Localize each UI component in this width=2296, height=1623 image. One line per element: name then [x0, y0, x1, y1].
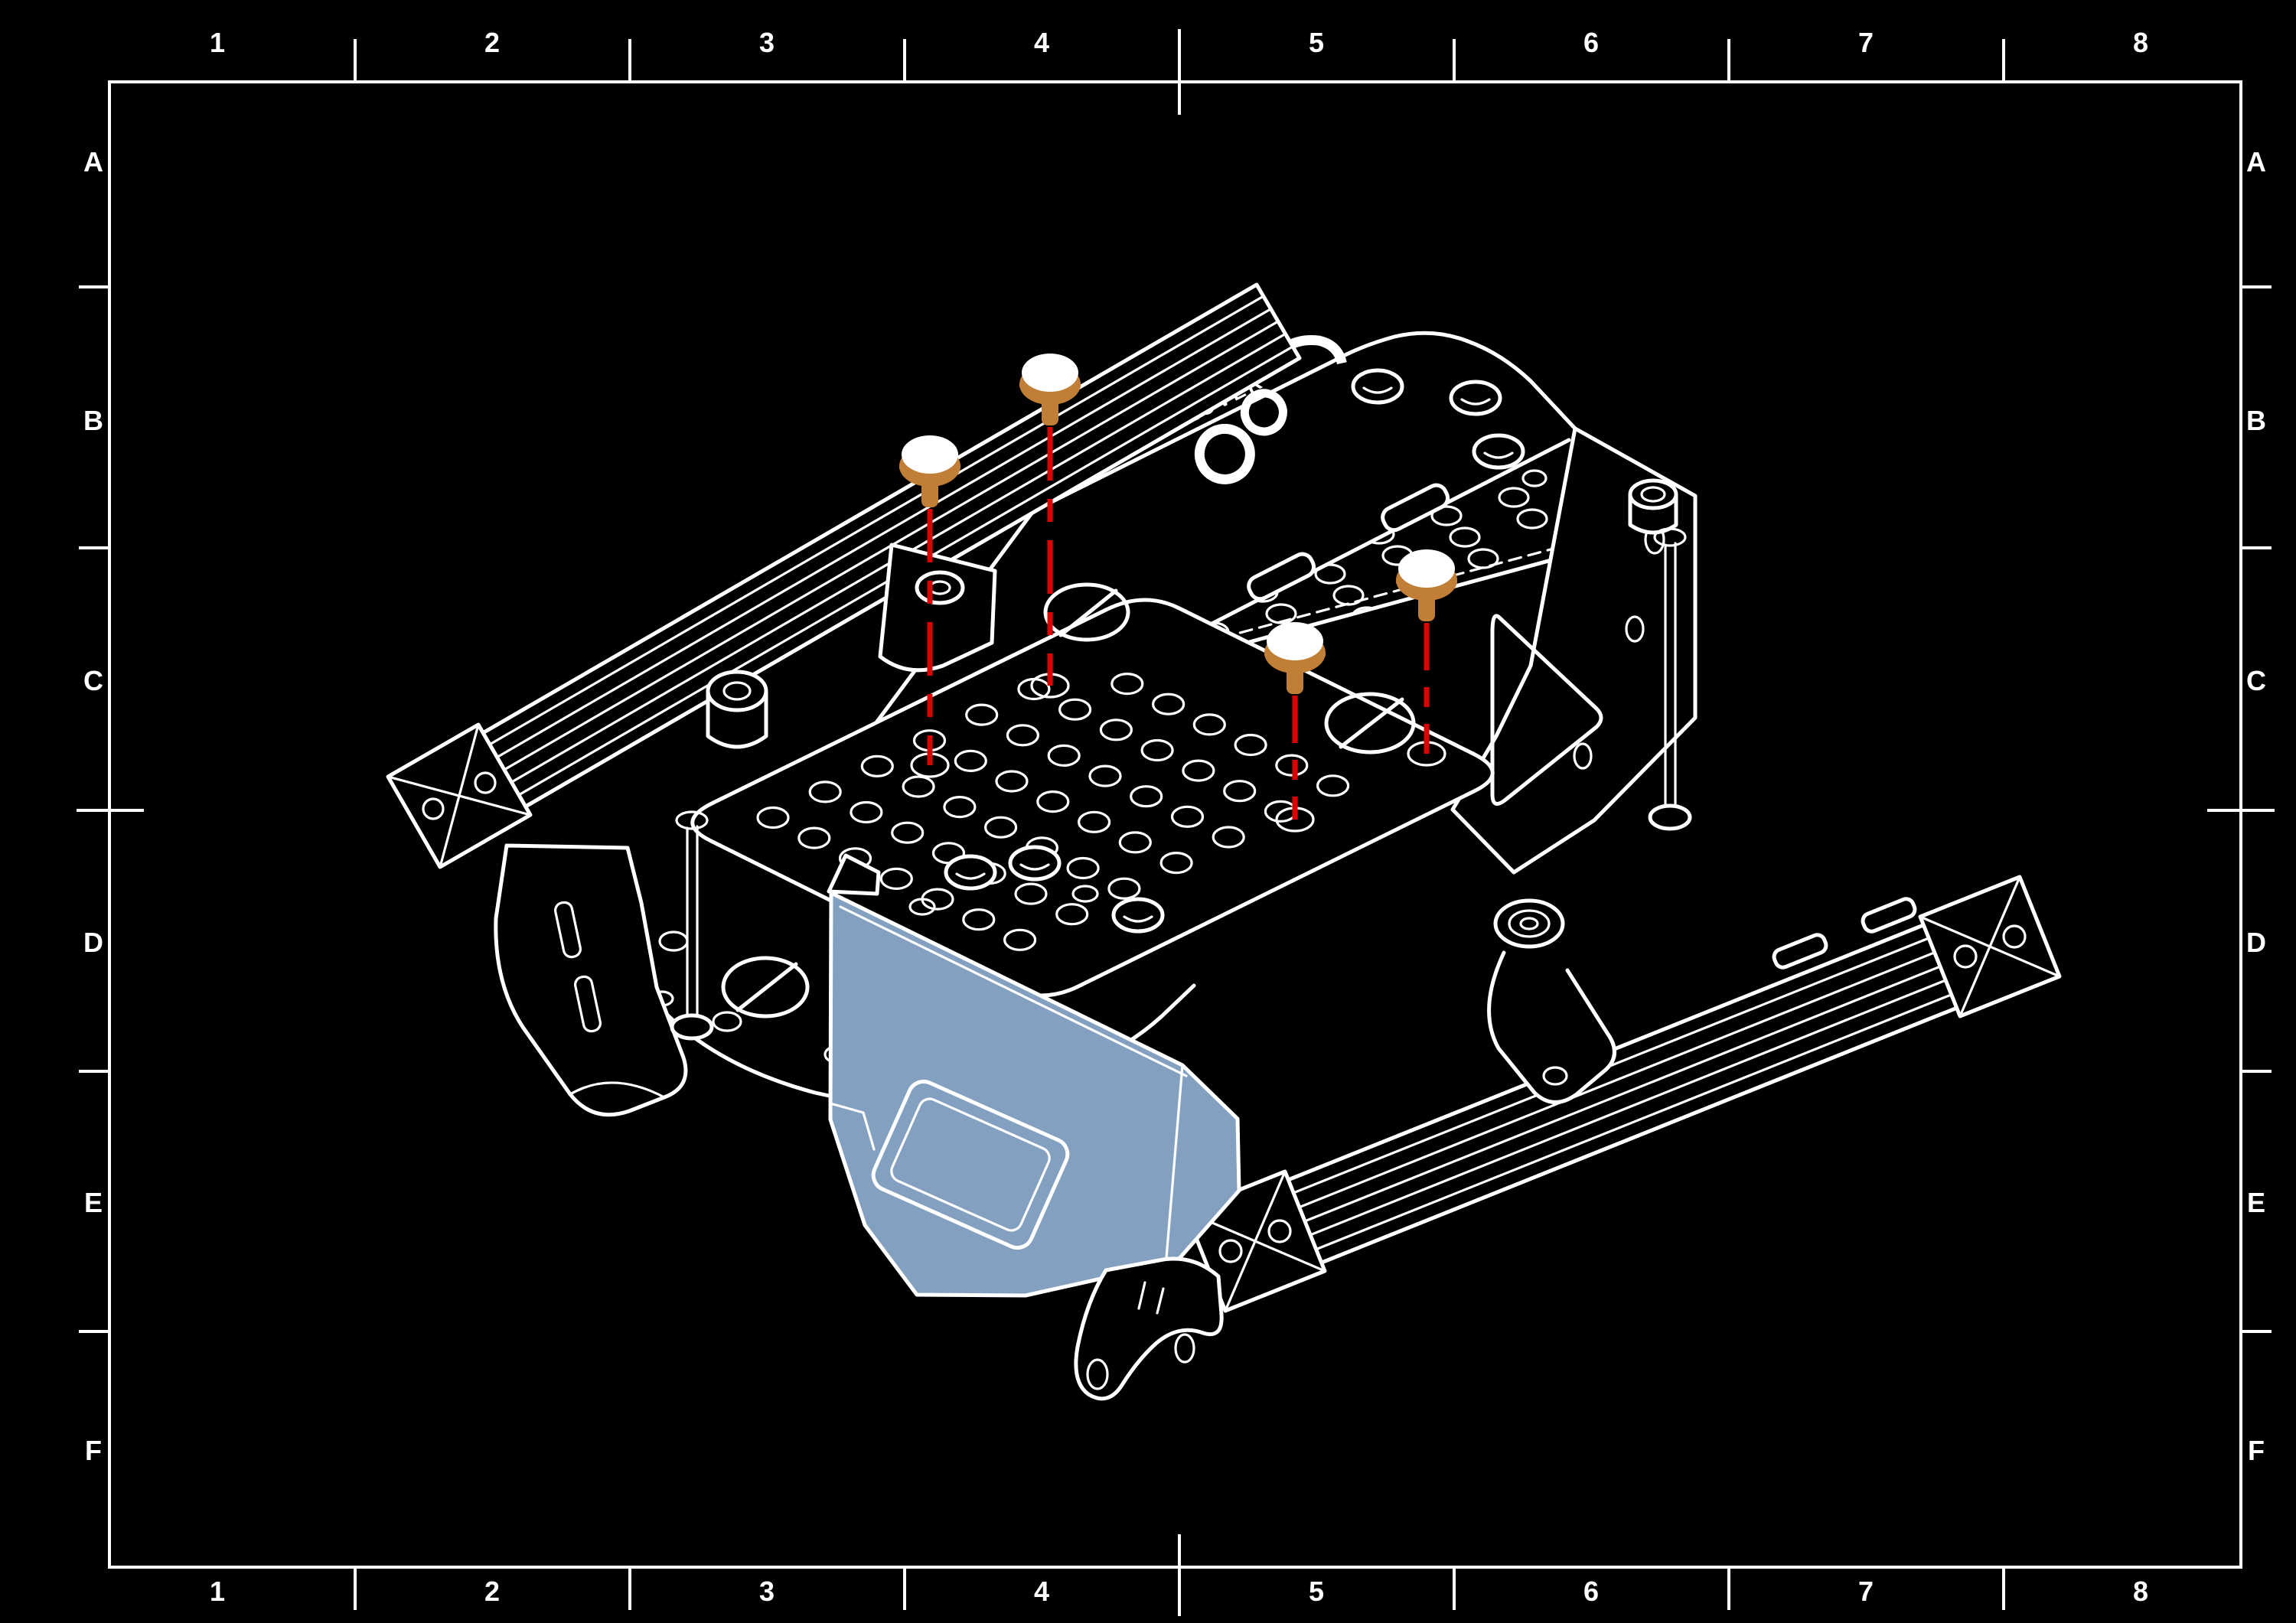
rail-hinge-bracket — [880, 545, 995, 670]
slotted-cutout — [723, 958, 807, 1016]
zone-label: E — [2247, 1187, 2265, 1218]
zone-label: F — [85, 1435, 102, 1466]
zone-label: D — [2246, 927, 2266, 958]
zone-label: 5 — [1309, 27, 1324, 58]
hole — [713, 1012, 741, 1031]
zone-label: 2 — [484, 1576, 500, 1607]
standoff-cylinder — [1630, 481, 1676, 533]
zone-label: 6 — [1583, 1576, 1599, 1607]
rail-mount-cylinder — [708, 672, 766, 747]
zone-label: E — [84, 1187, 103, 1218]
standoff — [1451, 382, 1500, 414]
zone-label: A — [83, 146, 103, 178]
hole — [1176, 1335, 1194, 1362]
zone-label: 3 — [759, 27, 775, 58]
rail-tab — [1861, 897, 1917, 934]
zone-label: D — [83, 927, 103, 958]
zone-label: B — [83, 405, 103, 436]
zone-label: A — [2246, 146, 2266, 178]
mid-deck-plate — [693, 585, 1493, 996]
hole — [660, 932, 687, 950]
zone-label: 2 — [484, 27, 500, 58]
zone-label: 1 — [210, 27, 225, 58]
zone-label: 1 — [210, 1576, 225, 1607]
zone-label: 4 — [1034, 1576, 1049, 1607]
rail-tab — [1772, 933, 1828, 970]
standoff — [946, 856, 995, 888]
left-shock-rod — [672, 812, 712, 1038]
screw-icon — [1396, 549, 1457, 621]
zone-label: 4 — [1034, 27, 1049, 58]
zone-row-labels-right: A B C D E F — [2246, 146, 2266, 1466]
right-rail — [1186, 877, 2060, 1311]
left-suspension-bracket — [496, 846, 686, 1115]
zone-label: 8 — [2133, 27, 2148, 58]
zone-label: F — [2248, 1435, 2265, 1466]
standoff — [1474, 435, 1523, 468]
zone-label: C — [2246, 665, 2266, 696]
standoff — [1353, 370, 1402, 402]
zone-label: 8 — [2133, 1576, 2148, 1607]
drawing-sheet: ROVER — [0, 0, 2296, 1623]
zone-label: 6 — [1583, 27, 1599, 58]
right-suspension-arm — [1489, 901, 1615, 1103]
zone-label: 7 — [1858, 27, 1874, 58]
zone-row-labels-left: A B C D E F — [83, 146, 103, 1466]
standoff — [1114, 899, 1163, 931]
assembly-drawing: ROVER — [388, 285, 2060, 1399]
zone-label: C — [83, 665, 103, 696]
zone-label: B — [2246, 405, 2266, 436]
zone-label: 5 — [1309, 1576, 1324, 1607]
zone-label: 3 — [759, 1576, 775, 1607]
zone-label: 7 — [1858, 1576, 1874, 1607]
standoff — [1010, 847, 1059, 879]
